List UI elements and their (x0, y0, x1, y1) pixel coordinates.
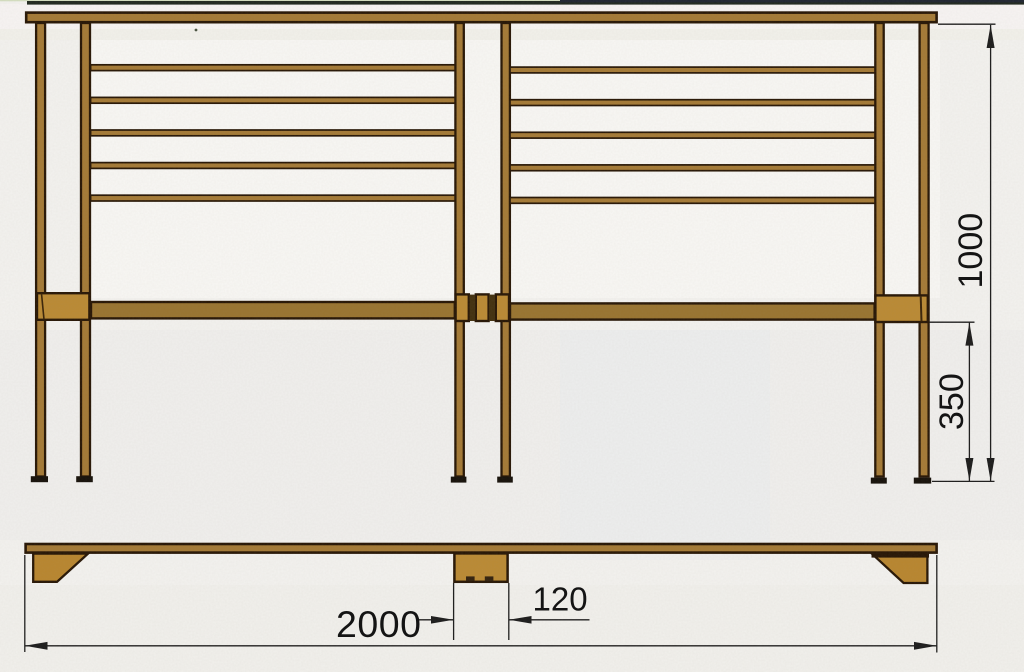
svg-text:1000: 1000 (952, 213, 990, 289)
svg-text:350: 350 (933, 373, 971, 430)
svg-text:120: 120 (533, 581, 588, 618)
svg-text:2000: 2000 (336, 603, 421, 645)
